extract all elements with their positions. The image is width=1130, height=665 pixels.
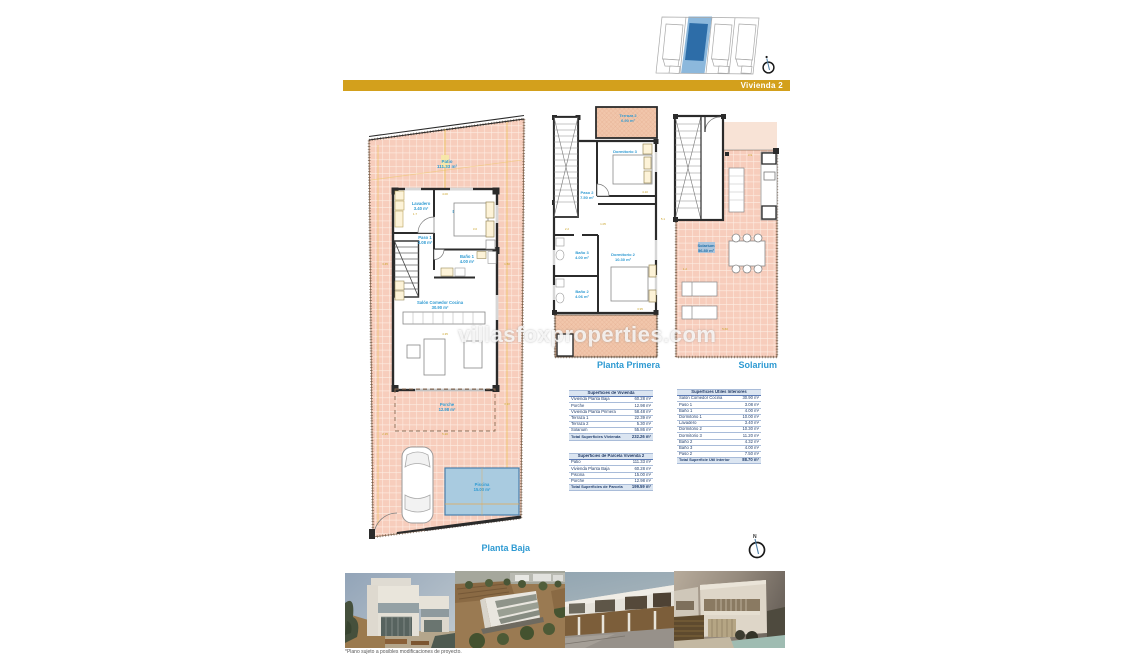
svg-text:3.0: 3.0 — [473, 227, 478, 231]
svg-text:5.20: 5.20 — [442, 432, 448, 436]
svg-text:3.40 m²: 3.40 m² — [414, 206, 429, 211]
svg-text:4.06 m²: 4.06 m² — [575, 294, 589, 299]
svg-text:3.08 m²: 3.08 m² — [418, 240, 433, 245]
svg-text:111.33 m²: 111.33 m² — [437, 164, 458, 169]
svg-text:1.7: 1.7 — [413, 212, 418, 216]
svg-text:6.90 m²: 6.90 m² — [621, 118, 635, 123]
svg-text:2.15: 2.15 — [382, 432, 388, 436]
svg-text:12.98 m²: 12.98 m² — [439, 407, 456, 412]
svg-text:4.00: 4.00 — [442, 192, 448, 196]
svg-text:1.50: 1.50 — [504, 262, 510, 266]
svg-text:10.30 m²: 10.30 m² — [615, 257, 632, 262]
svg-text:1.05: 1.05 — [600, 222, 606, 226]
svg-text:7.50 m²: 7.50 m² — [580, 195, 594, 200]
svg-text:4.00 m²: 4.00 m² — [460, 259, 475, 264]
svg-text:3.10: 3.10 — [504, 402, 510, 406]
svg-text:1.2: 1.2 — [683, 267, 688, 271]
svg-text:56.80 m²: 56.80 m² — [698, 248, 715, 253]
svg-text:4.10: 4.10 — [642, 190, 648, 194]
svg-text:4.35: 4.35 — [442, 332, 448, 336]
svg-text:2.2: 2.2 — [565, 227, 570, 231]
svg-text:4.00 m²: 4.00 m² — [575, 255, 589, 260]
svg-text:3.95: 3.95 — [637, 307, 643, 311]
svg-text:30.90 m²: 30.90 m² — [432, 305, 449, 310]
svg-text:3.45: 3.45 — [382, 262, 388, 266]
svg-text:3.9: 3.9 — [748, 153, 753, 157]
